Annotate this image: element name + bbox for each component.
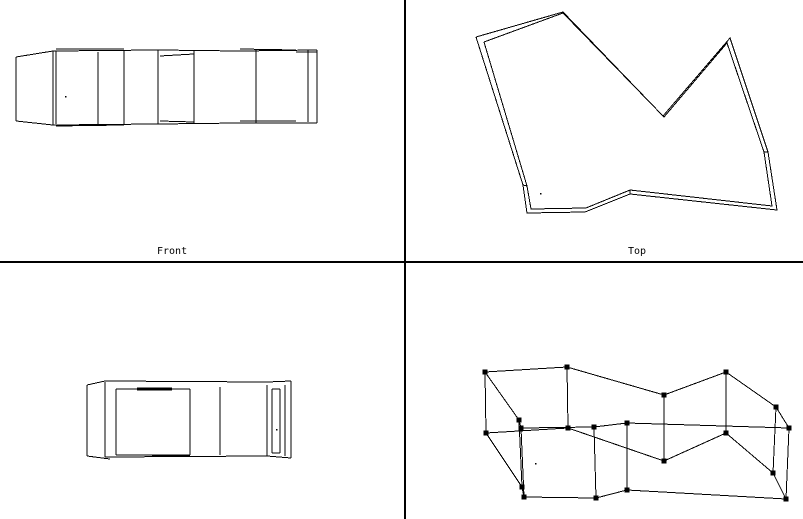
pivot-dot [276,429,278,431]
viewport-label-top: Top [628,247,646,257]
wireframe-edge [267,456,291,458]
viewport-front[interactable] [16,49,317,126]
wireframe-canvas [0,0,803,519]
vertex-handle[interactable] [519,426,524,431]
wireframe-edge [160,121,194,122]
wireframe-edge [158,50,240,51]
vertex-handle[interactable] [662,459,667,464]
viewport-dividers [0,0,803,519]
vertex-handle[interactable] [771,471,776,476]
wireframe-edge [16,51,53,57]
vertex-handle[interactable] [565,365,570,370]
vertex-handle[interactable] [784,497,789,502]
wireframe-edge [158,123,240,124]
vertex-handle[interactable] [662,393,667,398]
wireframe-edge [105,381,267,382]
divider-horizontal [0,261,803,263]
divider-vertical [404,0,406,519]
wireframe-edge [160,54,194,56]
vertex-handle[interactable] [522,495,527,500]
vertex-handle[interactable] [483,370,488,375]
wireframe-edge [240,49,296,50]
bottom-face-outline [486,428,786,499]
vertex-handle[interactable] [520,485,525,490]
viewport-label-front: Front [157,247,187,257]
vertex-handle[interactable] [592,425,597,430]
vertex-handle[interactable] [625,421,630,426]
vertex-handle[interactable] [594,496,599,501]
vertex-handle[interactable] [774,405,779,410]
app-window: Front Top [0,0,803,519]
outer-outline [476,12,777,213]
wireframe-edge [53,50,158,51]
vertical-edge [786,428,789,499]
vertex-handle[interactable] [625,488,630,493]
viewport-perspective[interactable] [483,365,792,502]
wireframe-edge [87,456,110,459]
vertical-edge [485,372,486,433]
vertex-handle[interactable] [517,418,522,423]
vertex-handle[interactable] [787,426,792,431]
wireframe-edge [267,381,291,382]
vertex-handle[interactable] [724,431,729,436]
top-face-outline [485,367,789,428]
viewport-top[interactable] [476,12,777,213]
wireframe-edge [87,381,105,385]
inner-outline [484,13,772,209]
viewport-side[interactable] [87,381,291,459]
vertex-handle[interactable] [724,370,729,375]
vertex-handle[interactable] [566,426,571,431]
vertex-handle[interactable] [484,431,489,436]
pivot-dot [535,463,537,465]
vertical-edge [773,407,776,473]
wireframe-edge [16,121,53,125]
pivot-dot [65,96,67,98]
pivot-dot [540,193,542,195]
vertical-edge [567,367,568,428]
